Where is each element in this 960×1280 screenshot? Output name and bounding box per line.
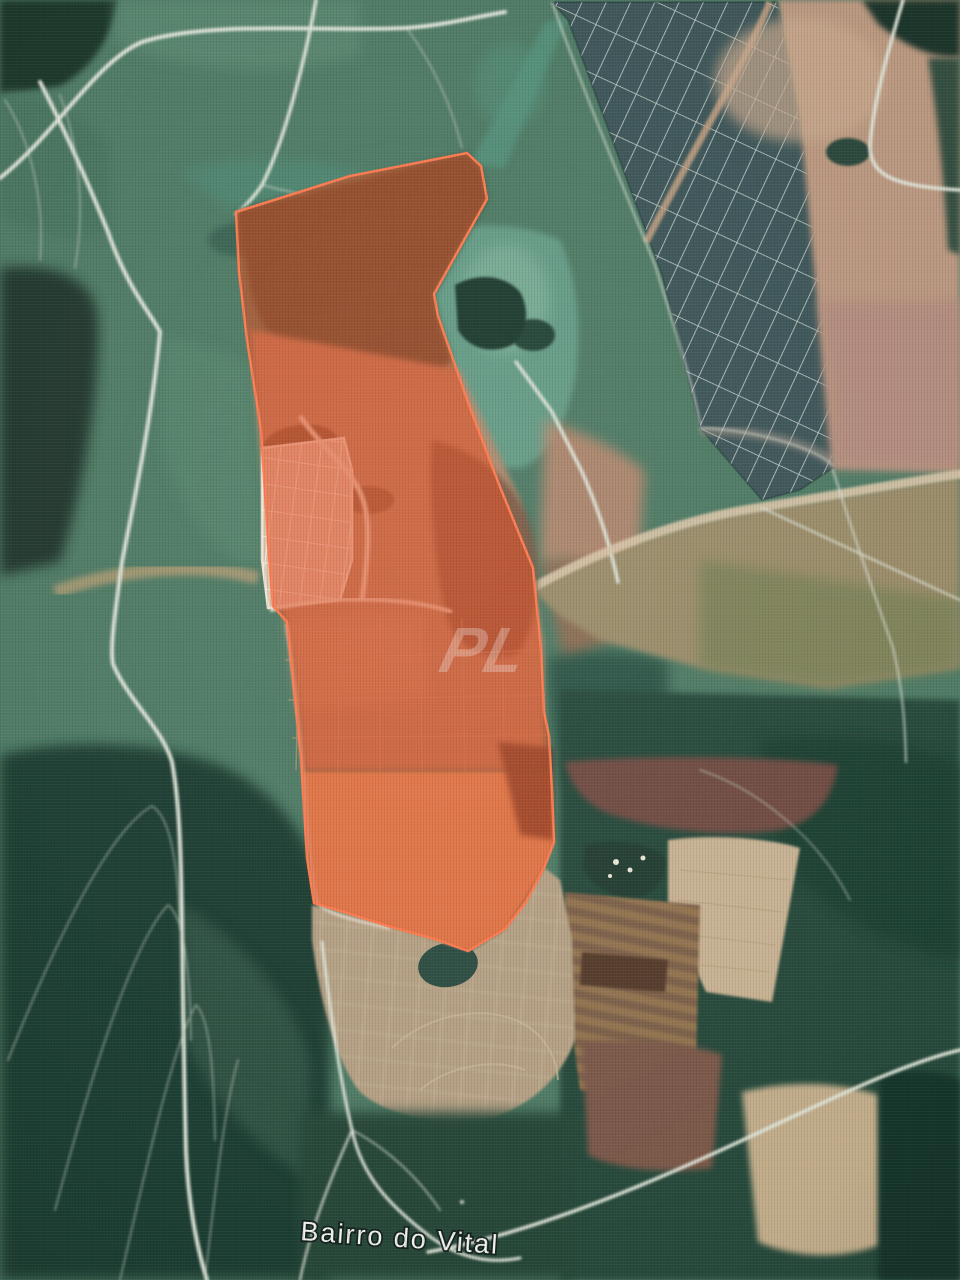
map-viewport[interactable]: PL Bairro do Vital bbox=[0, 0, 960, 1280]
watermark-text: PL bbox=[434, 614, 536, 686]
satellite-imagery: PL Bairro do Vital bbox=[0, 0, 960, 1280]
